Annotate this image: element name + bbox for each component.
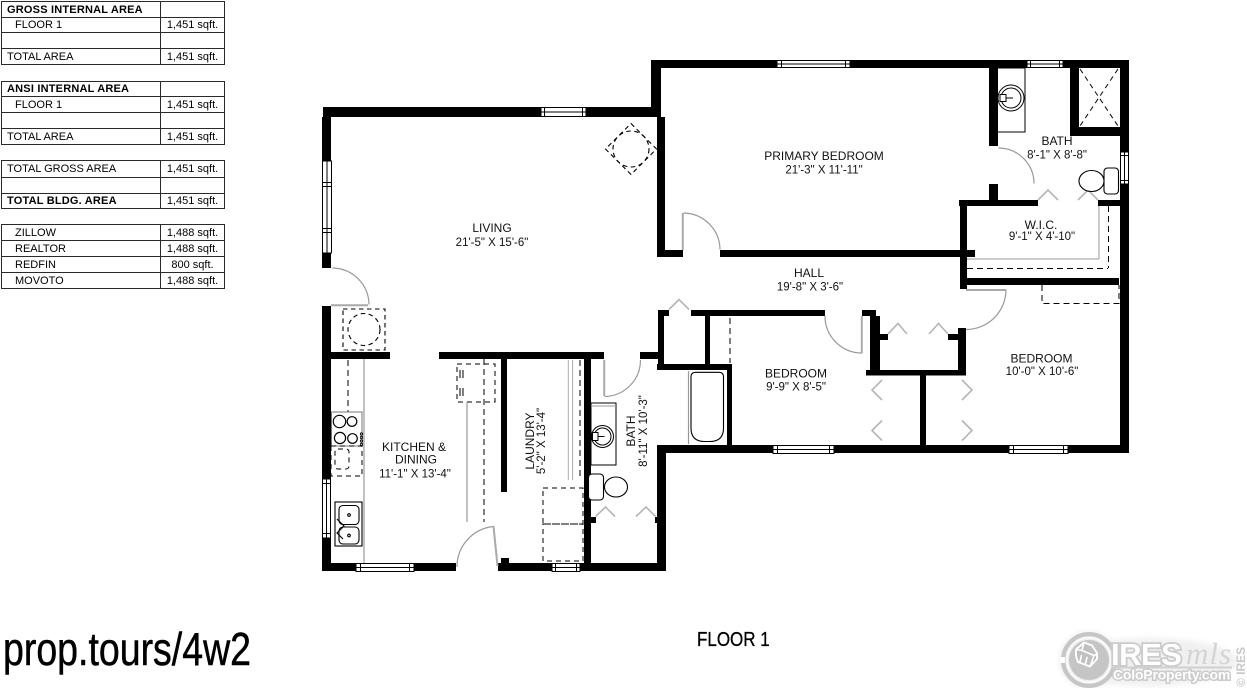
svg-text:W.I.C.: W.I.C. [1025,218,1058,232]
svg-text:© IRES: © IRES [1234,647,1247,687]
svg-text:DINING: DINING [395,453,437,467]
svg-text:BEDROOM: BEDROOM [765,367,827,381]
svg-text:9'-9" X 8'-5": 9'-9" X 8'-5" [766,382,826,394]
svg-text:BATH: BATH [624,415,638,446]
svg-text:8'-1" X 8'-8": 8'-1" X 8'-8" [1027,150,1087,162]
svg-text:LAUNDRY: LAUNDRY [523,412,537,469]
svg-text:ColoProperty.com: ColoProperty.com [1113,667,1230,683]
svg-text:5'-2" X 13'-4": 5'-2" X 13'-4" [536,408,548,474]
svg-text:21'-5" X 15'-6": 21'-5" X 15'-6" [456,237,529,249]
svg-text:HALL: HALL [794,266,824,280]
svg-text:BEDROOM: BEDROOM [1010,352,1072,366]
svg-text:8'-11" X 10'-3": 8'-11" X 10'-3" [638,395,650,467]
svg-text:11'-1" X 13'-4": 11'-1" X 13'-4" [379,469,451,481]
svg-text:10'-0" X 10'-6": 10'-0" X 10'-6" [1006,366,1079,378]
svg-text:21'-3" X 11'-11": 21'-3" X 11'-11" [785,165,862,177]
svg-text:BATH: BATH [1041,134,1072,148]
svg-text:9'-1" X 4'-10": 9'-1" X 4'-10" [1009,231,1075,243]
svg-text:PRIMARY BEDROOM: PRIMARY BEDROOM [764,149,884,163]
svg-text:LIVING: LIVING [472,221,511,235]
svg-text:19'-8" X 3'-6": 19'-8" X 3'-6" [777,282,843,294]
